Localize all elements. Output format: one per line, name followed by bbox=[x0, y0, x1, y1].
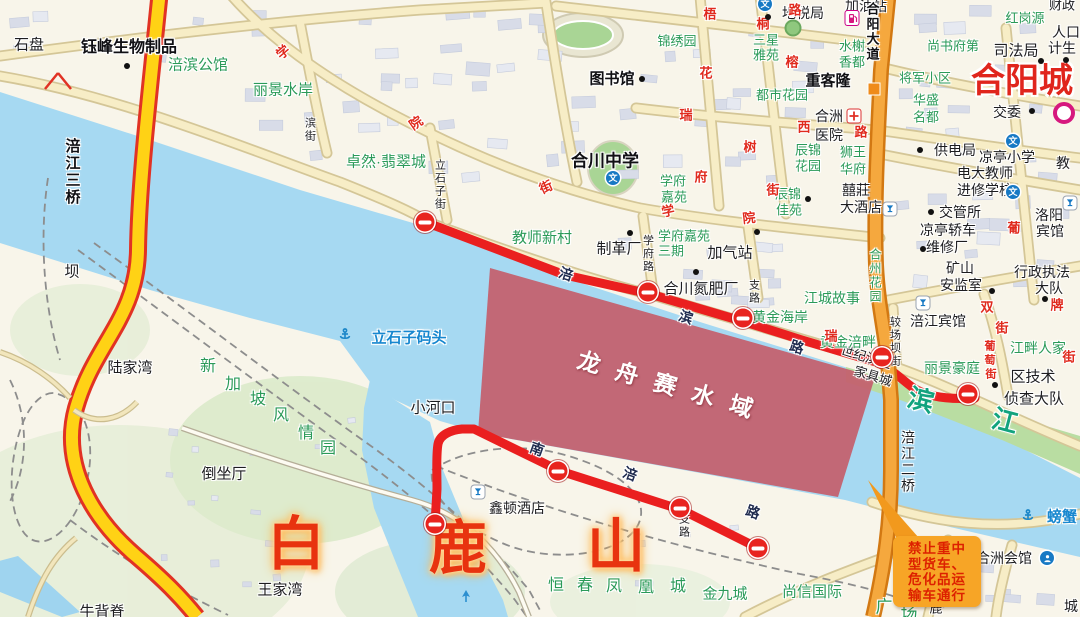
callout-line: 输车通行 bbox=[895, 588, 979, 604]
map-label: 狮王 bbox=[840, 146, 866, 159]
map-label: 将军小区 bbox=[899, 72, 951, 85]
no-entry-icon bbox=[416, 213, 435, 232]
no-entry-icon bbox=[959, 385, 978, 404]
map-label: 大队 bbox=[1035, 281, 1063, 295]
map-label: 江城故事 bbox=[804, 291, 860, 305]
map-label: 立石子码头 bbox=[371, 331, 446, 346]
no-entry-icon bbox=[549, 462, 568, 481]
no-entry-icon bbox=[639, 283, 658, 302]
map-label: 新 bbox=[200, 359, 216, 375]
map-label: 司法局 bbox=[993, 44, 1038, 59]
callout-line: 危化品运 bbox=[895, 572, 979, 588]
map-label: 树 bbox=[743, 141, 756, 154]
map-label: 名都 bbox=[913, 111, 939, 124]
map-label: 宾馆 bbox=[1036, 224, 1064, 238]
map-label: 学府 bbox=[660, 175, 686, 188]
poi-dot bbox=[1029, 108, 1035, 114]
landmark-icon bbox=[1053, 102, 1075, 124]
poi-dot bbox=[627, 230, 633, 236]
map-label: 园 bbox=[320, 441, 336, 457]
map-label: 鑫顿酒店 bbox=[489, 501, 545, 515]
map-label: 双 bbox=[980, 301, 993, 314]
map-label: 恒 bbox=[548, 578, 564, 594]
map-label: 红岗源 bbox=[1005, 12, 1044, 25]
map-label: 石盘 bbox=[14, 38, 44, 53]
map-label: 水榭 bbox=[839, 40, 865, 53]
poi-dot bbox=[920, 246, 926, 252]
school-icon: 文 bbox=[1006, 134, 1020, 148]
no-entry-icon bbox=[734, 309, 753, 328]
callout-line: 禁止重中 bbox=[895, 541, 979, 557]
map-label: 教 bbox=[1056, 156, 1070, 170]
map-label: 雅苑 bbox=[753, 49, 779, 62]
map-label: 交管所 bbox=[939, 205, 981, 219]
map-label: 制革厂 bbox=[596, 242, 641, 257]
map-label: 矿山 bbox=[946, 261, 974, 275]
map-label: 广 bbox=[876, 599, 893, 616]
map-label: 金九城 bbox=[702, 587, 747, 602]
map-label: 囍莊 bbox=[842, 183, 870, 197]
map-label: 院 bbox=[742, 211, 756, 225]
poi-dot bbox=[917, 147, 923, 153]
poi-dot bbox=[1042, 296, 1048, 302]
map-label: 花园 bbox=[795, 160, 821, 173]
map-label: 学 bbox=[660, 203, 675, 218]
map-label: 螃蟹 bbox=[1047, 510, 1077, 525]
poi-dot bbox=[992, 382, 998, 388]
map-label: 梧 bbox=[703, 8, 716, 21]
roundabout-icon bbox=[785, 20, 802, 37]
map-label: 丽景水岸 bbox=[253, 83, 313, 98]
map-label: 江畔人家 bbox=[1010, 341, 1066, 355]
poi-dot bbox=[1063, 57, 1069, 63]
map-label: 辰锦 bbox=[795, 144, 821, 157]
no-entry-icon bbox=[873, 348, 892, 367]
map-label: 支路 bbox=[748, 279, 759, 305]
map-label: 葡 bbox=[985, 342, 996, 353]
map-label: 华府 bbox=[840, 163, 866, 176]
map-label: 街 bbox=[766, 184, 779, 197]
map-label: 路 bbox=[788, 4, 801, 17]
map-label: 卓然·翡翠城 bbox=[346, 155, 426, 170]
map-label: 瑞 bbox=[679, 109, 692, 122]
map-label: 情 bbox=[298, 426, 314, 442]
anchor-icon bbox=[1021, 509, 1035, 528]
map-label: 都市花园 bbox=[756, 89, 808, 102]
map-label: 萄 bbox=[985, 356, 996, 367]
poi-dot bbox=[1038, 58, 1044, 64]
map-label: 人口 bbox=[1052, 25, 1080, 39]
map-canvas: 禁止重中 型货车、 危化品运 输车通行 石盘钰峰生物制品图书馆合川中学地税局加油… bbox=[0, 0, 1080, 617]
map-label: 街 bbox=[995, 322, 1008, 335]
map-label: 牌 bbox=[1050, 299, 1063, 312]
map-label: 府 bbox=[694, 171, 707, 184]
map-label: 街 bbox=[986, 370, 997, 381]
poi-dot bbox=[124, 63, 130, 69]
map-label: 丽景豪庭 bbox=[924, 361, 980, 375]
flow-arrow-icon bbox=[461, 589, 471, 607]
map-label: 城 bbox=[670, 579, 686, 595]
map-label: 区技术 bbox=[1010, 370, 1055, 385]
poi-dot bbox=[928, 209, 934, 215]
map-label: 香都 bbox=[839, 56, 865, 69]
map-label: 涪江宾馆 bbox=[910, 314, 966, 328]
map-label: 财政 bbox=[1049, 0, 1075, 12]
map-label: 西 bbox=[797, 121, 810, 134]
map-label: 三星 bbox=[753, 34, 779, 47]
map-label: 陆家湾 bbox=[107, 361, 152, 376]
map-label: 学府路 bbox=[642, 235, 653, 274]
map-label: 滨街 bbox=[304, 117, 315, 143]
map-label: 交委 bbox=[993, 105, 1021, 119]
map-label: 计生 bbox=[1048, 41, 1076, 55]
map-label: 洛阳 bbox=[1035, 208, 1063, 222]
map-label: 涪江二桥 bbox=[901, 430, 915, 494]
map-label: 凉亭轿车 bbox=[920, 223, 976, 237]
callout-line: 型货车、 bbox=[895, 557, 979, 573]
map-label: 合阳城 bbox=[971, 64, 1073, 98]
map-label: 加气站 bbox=[707, 246, 752, 261]
person-icon bbox=[1040, 551, 1054, 565]
no-entry-icon bbox=[426, 515, 445, 534]
map-label: 合阳大道 bbox=[866, 2, 879, 62]
map-label: 行政执法 bbox=[1014, 265, 1070, 279]
map-label: 春 bbox=[577, 578, 593, 594]
school-icon: 文 bbox=[758, 0, 772, 11]
school-icon: 文 bbox=[606, 171, 620, 185]
map-label: 城 bbox=[1064, 599, 1078, 613]
map-label: 立石子街 bbox=[434, 159, 445, 211]
map-label: 佳苑 bbox=[776, 204, 802, 217]
map-label: 葡 bbox=[1007, 222, 1020, 235]
hotel-icon bbox=[1064, 197, 1077, 210]
hospital-icon bbox=[848, 110, 861, 123]
poi-dot bbox=[754, 229, 760, 235]
map-label: 合州花园 bbox=[869, 248, 881, 304]
map-label: 场 bbox=[901, 606, 918, 617]
map-label: 尚信国际 bbox=[782, 585, 842, 600]
anchor-icon bbox=[338, 328, 352, 347]
map-label: 合洲会馆 bbox=[976, 551, 1032, 565]
map-label: 风 bbox=[273, 408, 289, 424]
hotel-icon bbox=[472, 486, 485, 499]
hotel-icon bbox=[917, 297, 930, 310]
map-label: 街 bbox=[1062, 351, 1075, 364]
map-label: 榕 bbox=[785, 56, 798, 69]
map-label: 钰峰生物制品 bbox=[81, 40, 177, 56]
poi-dot bbox=[693, 269, 699, 275]
map-label: 凰 bbox=[638, 580, 654, 596]
map-label: 白 bbox=[267, 516, 325, 574]
truck-restriction-callout: 禁止重中 型货车、 危化品运 输车通行 bbox=[893, 536, 981, 607]
map-label: 电大教师 bbox=[957, 166, 1013, 180]
map-label: 维修厂 bbox=[926, 240, 968, 254]
map-label: 尚书府第 bbox=[927, 40, 979, 53]
poi-dot bbox=[989, 288, 995, 294]
map-label: 学府嘉苑 bbox=[658, 230, 710, 243]
store-icon bbox=[869, 84, 880, 95]
map-label: 小河口 bbox=[410, 401, 455, 416]
map-label: 合洲 bbox=[815, 109, 843, 123]
map-label: 三期 bbox=[658, 245, 684, 258]
no-entry-icon bbox=[671, 499, 690, 518]
map-label: 凤 bbox=[606, 579, 622, 595]
map-label: 锦绣园 bbox=[657, 35, 696, 48]
map-label: 坡 bbox=[250, 392, 266, 408]
map-label: 加 bbox=[225, 377, 241, 393]
map-label: 凉亭小学 bbox=[979, 150, 1035, 164]
map-label: 教师新村 bbox=[512, 231, 572, 246]
map-label: 倒坐厅 bbox=[201, 467, 246, 482]
map-label: 合川氮肥厂 bbox=[663, 282, 738, 297]
map-label: 华盛 bbox=[913, 94, 939, 107]
map-label: 花 bbox=[699, 67, 712, 80]
map-label: 侦查大队 bbox=[1004, 392, 1064, 407]
gas-icon bbox=[846, 11, 859, 25]
map-label: 山 bbox=[587, 518, 645, 576]
map-label: 安监室 bbox=[940, 278, 982, 292]
map-label: 坝 bbox=[64, 265, 79, 280]
map-label: 瑞 bbox=[824, 330, 837, 343]
map-label: 牛背脊 bbox=[79, 605, 124, 617]
no-entry-icon bbox=[749, 539, 768, 558]
map-label: 合川中学 bbox=[571, 153, 639, 170]
map-label: 重客隆 bbox=[805, 74, 850, 89]
map-label: 涪江三桥 bbox=[65, 138, 80, 206]
map-label: 涪滨公馆 bbox=[168, 58, 228, 73]
map-label: 黄金海岸 bbox=[752, 310, 808, 324]
hotel-icon bbox=[884, 203, 897, 216]
map-label: 医院 bbox=[815, 128, 843, 142]
school-icon: 文 bbox=[1006, 185, 1020, 199]
map-label: 大酒店 bbox=[840, 200, 882, 214]
map-label: 进修学校 bbox=[957, 183, 1013, 197]
map-label: 供电局 bbox=[934, 143, 976, 157]
map-label: 嘉苑 bbox=[661, 191, 687, 204]
map-label: 王家湾 bbox=[257, 583, 302, 598]
map-label: 路 bbox=[854, 126, 867, 139]
poi-dot bbox=[639, 76, 645, 82]
poi-dot bbox=[765, 14, 771, 20]
poi-dot bbox=[805, 196, 811, 202]
map-label: 图书馆 bbox=[589, 72, 634, 87]
